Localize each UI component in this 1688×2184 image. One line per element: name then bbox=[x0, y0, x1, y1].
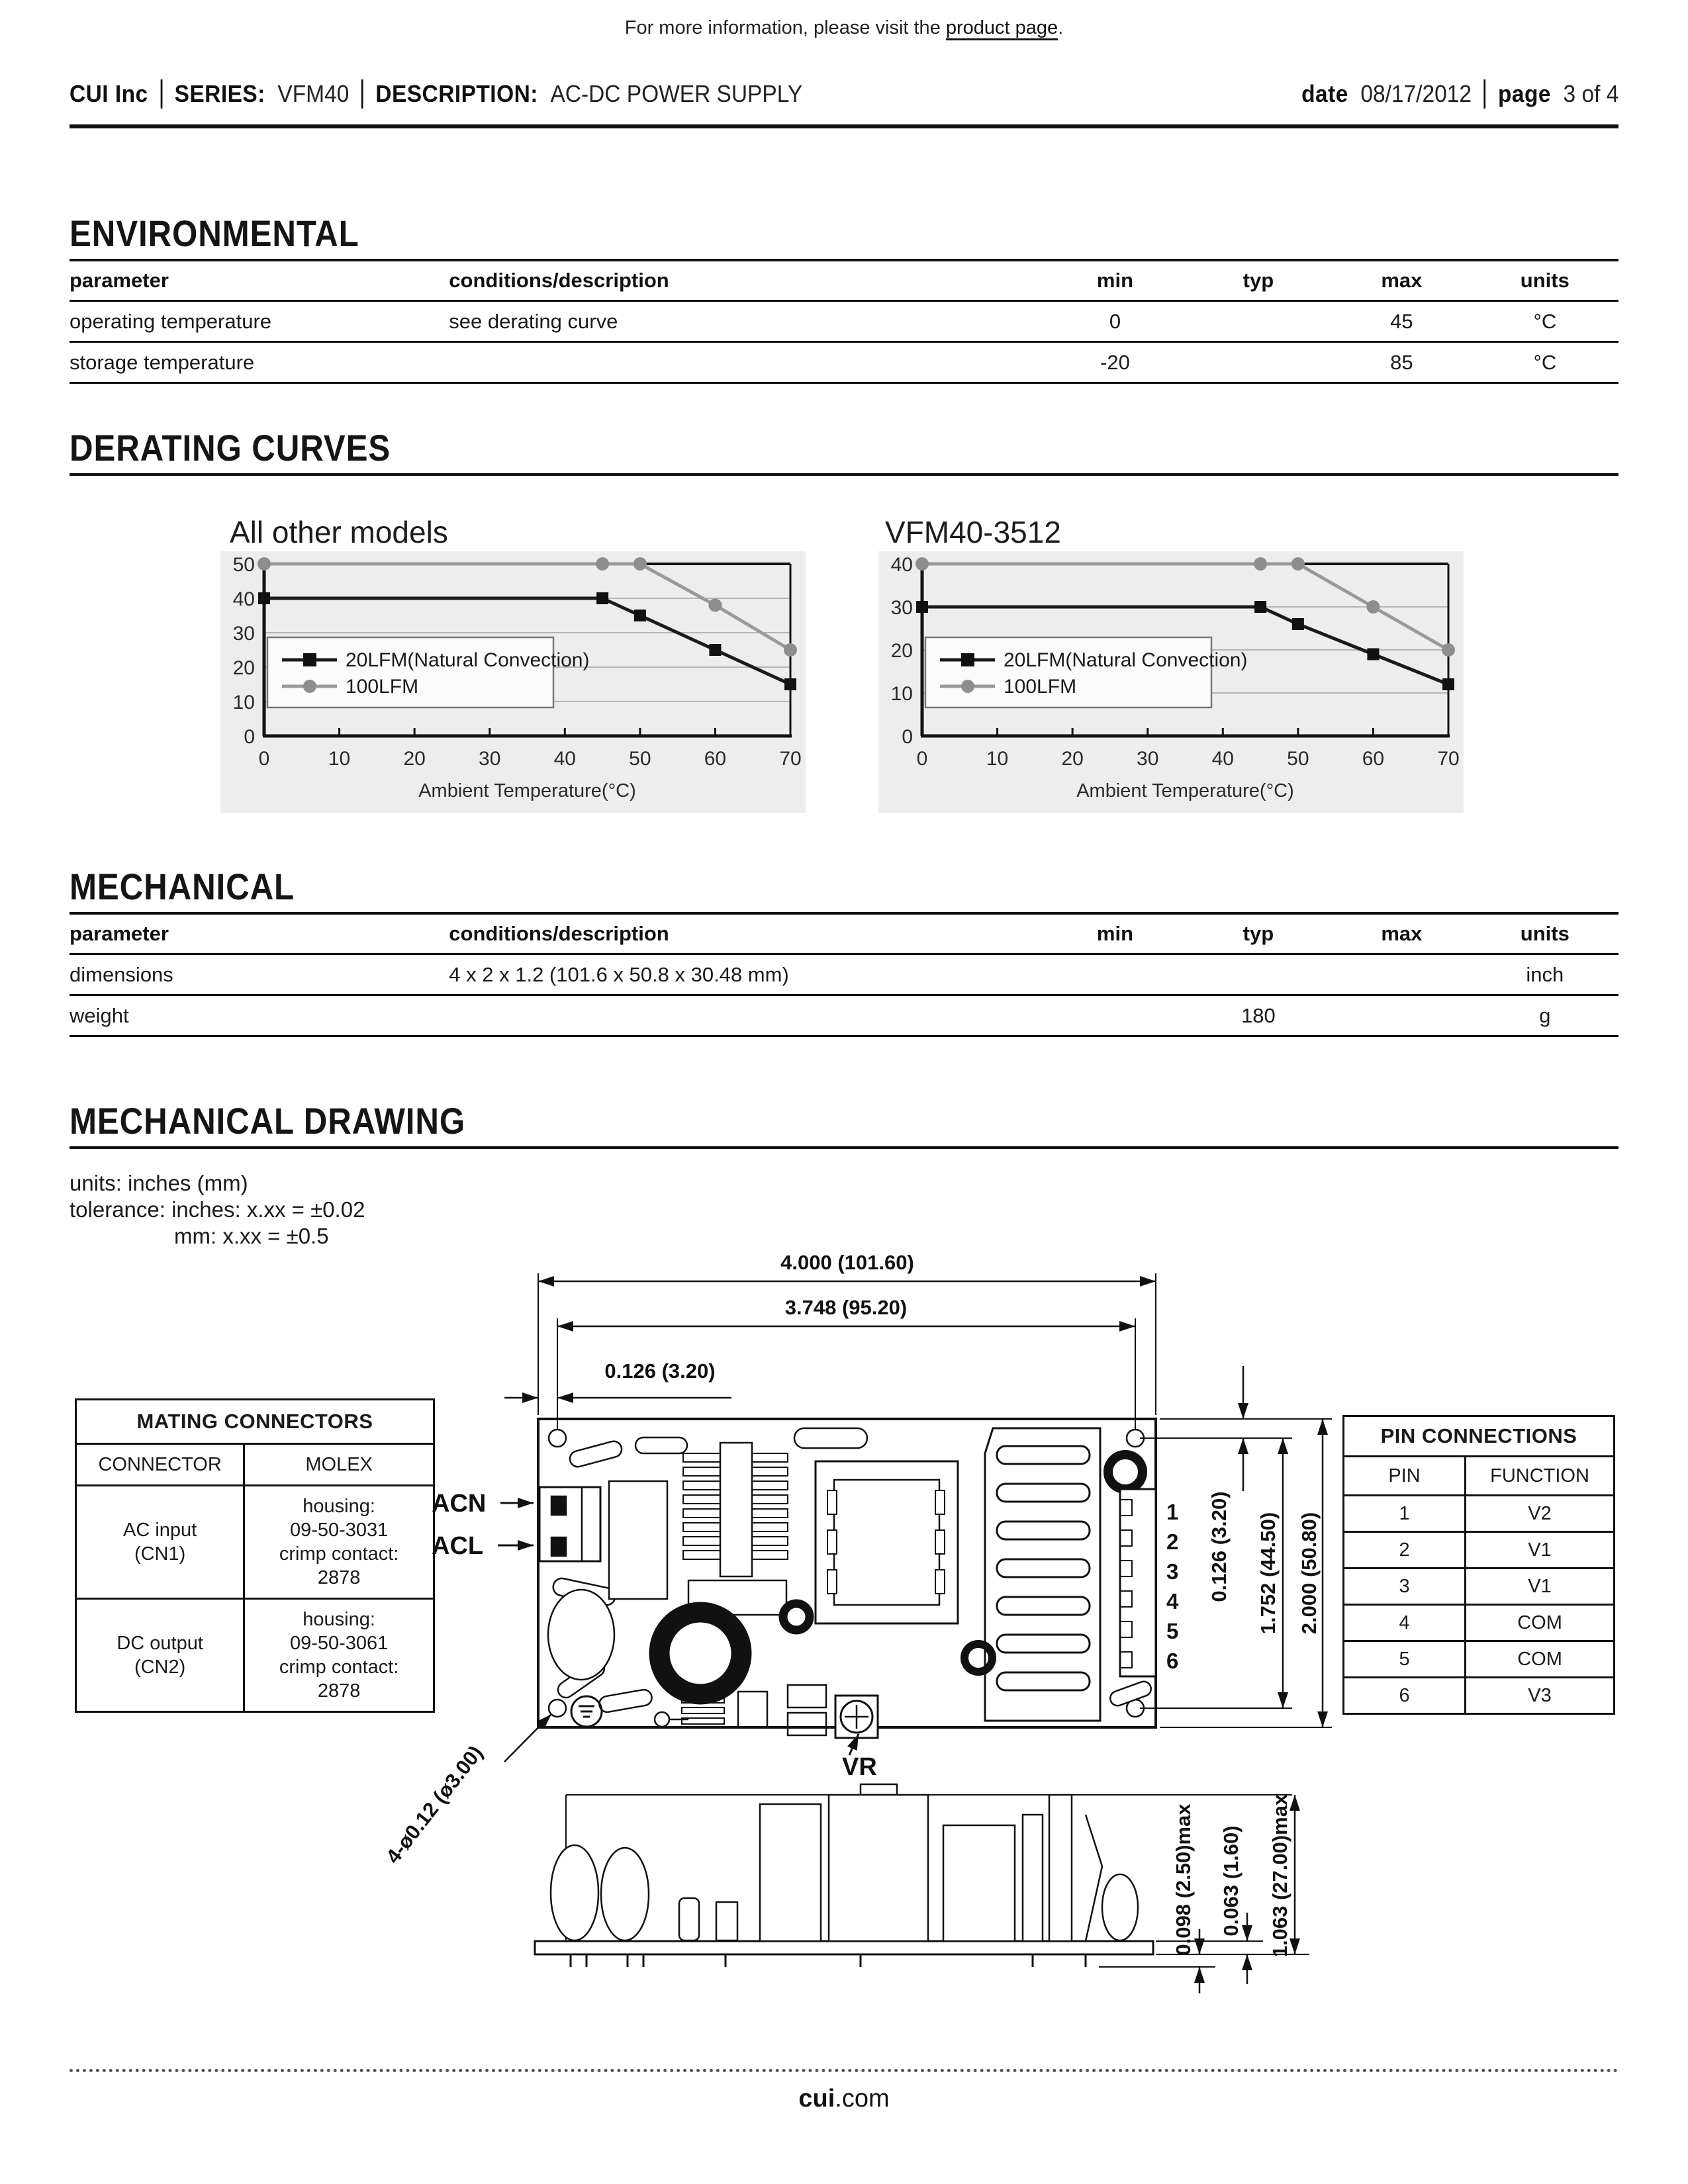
table-row: dimensions 4 x 2 x 1.2 (101.6 x 50.8 x 3… bbox=[70, 954, 1618, 995]
dim-pin-protrusion: 0.098 (2.50)max bbox=[1172, 1803, 1195, 1956]
svg-text:20: 20 bbox=[403, 748, 425, 770]
col-parameter: parameter bbox=[70, 915, 449, 954]
cell-line: housing: bbox=[249, 1494, 429, 1518]
col-molex: MOLEX bbox=[244, 1444, 434, 1486]
cell-line: housing: bbox=[249, 1608, 429, 1631]
cell-line: (CN2) bbox=[81, 1655, 239, 1679]
header-separator bbox=[361, 79, 363, 109]
svg-text:Ambient Temperature(°C): Ambient Temperature(°C) bbox=[418, 780, 636, 801]
cell: inch bbox=[1472, 954, 1618, 995]
ac-input-labels: ACN ACL bbox=[432, 1490, 534, 1560]
svg-text:40: 40 bbox=[554, 748, 576, 770]
small-capacitor bbox=[964, 1644, 992, 1672]
svg-text:100LFM: 100LFM bbox=[1004, 676, 1076, 698]
col-connector: CONNECTOR bbox=[76, 1444, 244, 1486]
cell: 180 bbox=[1185, 995, 1332, 1036]
mechanical-section: MECHANICAL parameter conditions/descript… bbox=[70, 868, 1618, 1037]
cell: 4 x 2 x 1.2 (101.6 x 50.8 x 30.48 mm) bbox=[449, 954, 1045, 995]
footer-brand: cui bbox=[798, 2085, 835, 2113]
svg-text:50: 50 bbox=[233, 554, 255, 576]
pin-number: 2 bbox=[1166, 1529, 1178, 1554]
footer-rule bbox=[70, 2069, 1618, 2072]
cell: V2 bbox=[1466, 1496, 1615, 1532]
col-max: max bbox=[1332, 915, 1472, 954]
svg-text:10: 10 bbox=[233, 692, 255, 713]
cell bbox=[1332, 954, 1472, 995]
bulk-capacitor bbox=[659, 1612, 741, 1694]
derating-heading: DERATING CURVES bbox=[70, 430, 1618, 476]
page-label: page bbox=[1498, 80, 1551, 108]
chart-title-vfm40-3512: VFM40-3512 bbox=[885, 514, 1061, 550]
company-name: CUI Inc bbox=[70, 80, 148, 108]
col-conditions: conditions/description bbox=[449, 915, 1045, 954]
vr-text: VR bbox=[842, 1753, 877, 1781]
date-label: date bbox=[1301, 80, 1348, 108]
pin-number-labels: 1 2 3 4 5 6 bbox=[1166, 1500, 1179, 1673]
cell bbox=[449, 342, 1045, 383]
cell: operating temperature bbox=[70, 301, 449, 342]
svg-text:40: 40 bbox=[891, 554, 913, 576]
svg-text:30: 30 bbox=[891, 597, 913, 619]
cell bbox=[1332, 995, 1472, 1036]
cell: °C bbox=[1472, 301, 1618, 342]
table-row: 2V1 bbox=[1344, 1532, 1615, 1569]
svg-text:10: 10 bbox=[328, 748, 350, 770]
dim-height-inner: 1.752 (44.50) bbox=[1256, 1512, 1280, 1634]
heatsink bbox=[985, 1428, 1100, 1721]
table-row: AC input (CN1) housing: 09-50-3031 crimp… bbox=[76, 1486, 434, 1599]
cell: COM bbox=[1466, 1605, 1615, 1641]
pin-number: 6 bbox=[1166, 1649, 1178, 1673]
environmental-section: ENVIRONMENTAL parameter conditions/descr… bbox=[70, 215, 1618, 384]
cell bbox=[1045, 995, 1185, 1036]
dim-height-outer: 2.000 (50.80) bbox=[1297, 1512, 1321, 1634]
product-page-link[interactable]: product page bbox=[946, 17, 1058, 38]
cell: dimensions bbox=[70, 954, 449, 995]
cell: 3 bbox=[1344, 1569, 1466, 1605]
cell: 0 bbox=[1045, 301, 1185, 342]
svg-text:20: 20 bbox=[891, 640, 913, 662]
header-right: date 08/17/2012 page 3 of 4 bbox=[1301, 79, 1618, 109]
col-typ: typ bbox=[1185, 261, 1332, 301]
mechanical-heading: MECHANICAL bbox=[70, 868, 1618, 915]
col-max: max bbox=[1332, 261, 1472, 301]
datasheet-page: For more information, please visit the p… bbox=[0, 0, 1688, 2184]
footer-domain: .com bbox=[835, 2085, 889, 2113]
svg-text:0: 0 bbox=[259, 748, 270, 770]
mechanical-drawing-section: MECHANICAL DRAWING bbox=[70, 1103, 1618, 1149]
cn1-ac-input-connector bbox=[539, 1487, 600, 1561]
cell bbox=[449, 995, 1045, 1036]
output-capacitor bbox=[1108, 1455, 1143, 1489]
through-hole-pins bbox=[571, 1954, 1086, 1967]
svg-text:70: 70 bbox=[779, 748, 801, 770]
pin-connections-table: PIN CONNECTIONS PIN FUNCTION 1V2 2V1 3V1… bbox=[1342, 1415, 1615, 1715]
table-header-row: parameter conditions/description min typ… bbox=[70, 261, 1618, 301]
header-separator bbox=[1483, 79, 1485, 109]
vr-label: VR bbox=[842, 1734, 877, 1781]
drawing-notes: units: inches (mm) tolerance: inches: x.… bbox=[70, 1170, 365, 1250]
table-row: DC output (CN2) housing: 09-50-3061 crim… bbox=[76, 1599, 434, 1712]
table-row: 4COM bbox=[1344, 1605, 1615, 1641]
cell bbox=[1185, 342, 1332, 383]
top-view-drawing bbox=[538, 1419, 1156, 1738]
table-row: 1V2 bbox=[1344, 1496, 1615, 1532]
col-units: units bbox=[1472, 915, 1618, 954]
units-note: units: inches (mm) bbox=[70, 1170, 365, 1197]
svg-text:0: 0 bbox=[244, 726, 255, 748]
table-header-row: parameter conditions/description min typ… bbox=[70, 915, 1618, 954]
svg-text:30: 30 bbox=[1137, 748, 1158, 770]
cell: see derating curve bbox=[449, 301, 1045, 342]
col-typ: typ bbox=[1185, 915, 1332, 954]
header-separator bbox=[160, 79, 162, 109]
derating-section: DERATING CURVES bbox=[70, 430, 1618, 476]
environmental-heading: ENVIRONMENTAL bbox=[70, 215, 1618, 261]
cell bbox=[1185, 301, 1332, 342]
pcb-side-profile bbox=[535, 1941, 1153, 1954]
cell: 2 bbox=[1344, 1532, 1466, 1569]
table-row: 3V1 bbox=[1344, 1569, 1615, 1605]
table-row: storage temperature -20 85 °C bbox=[70, 342, 1618, 383]
svg-text:60: 60 bbox=[704, 748, 726, 770]
description-value: AC-DC POWER SUPPLY bbox=[550, 80, 802, 108]
table-row: operating temperature see derating curve… bbox=[70, 301, 1618, 342]
svg-text:50: 50 bbox=[1287, 748, 1309, 770]
cell-line: 09-50-3061 bbox=[249, 1631, 429, 1655]
pin-number: 3 bbox=[1166, 1559, 1178, 1584]
pin-connections-title: PIN CONNECTIONS bbox=[1344, 1416, 1615, 1457]
dim-pcb-thickness: 0.063 (1.60) bbox=[1219, 1825, 1243, 1936]
svg-text:40: 40 bbox=[1212, 748, 1234, 770]
pin-number: 4 bbox=[1166, 1589, 1179, 1614]
chart-title-all-models: All other models bbox=[230, 514, 448, 550]
cell: 1 bbox=[1344, 1496, 1466, 1532]
dim-component-height: 1.063 (27.00)max bbox=[1268, 1794, 1291, 1957]
cell-line: (CN1) bbox=[81, 1542, 239, 1566]
tolerance-note: tolerance: inches: x.xx = ±0.02 bbox=[70, 1197, 365, 1223]
cell: 4 bbox=[1344, 1605, 1466, 1641]
svg-text:40: 40 bbox=[233, 588, 255, 610]
header-rule bbox=[70, 124, 1618, 128]
cell-line: crimp contact: bbox=[249, 1655, 429, 1679]
date-value: 08/17/2012 bbox=[1360, 80, 1472, 108]
mechanical-drawing-heading: MECHANICAL DRAWING bbox=[70, 1103, 1618, 1149]
col-pin: PIN bbox=[1344, 1457, 1466, 1496]
cn2-dc-output-connector bbox=[1120, 1489, 1156, 1676]
svg-text:100LFM: 100LFM bbox=[346, 676, 418, 698]
svg-text:0: 0 bbox=[917, 748, 928, 770]
col-units: units bbox=[1472, 261, 1618, 301]
svg-text:20: 20 bbox=[1061, 748, 1083, 770]
derating-chart-all-models: 01020304050010203040506070Ambient Temper… bbox=[220, 551, 806, 813]
svg-text:30: 30 bbox=[479, 748, 500, 770]
cell: weight bbox=[70, 995, 449, 1036]
dim-offset-left: 0.126 (3.20) bbox=[604, 1359, 715, 1383]
series-value: VFM40 bbox=[277, 80, 349, 108]
footer: cui.com bbox=[0, 2085, 1688, 2113]
cell bbox=[1185, 954, 1332, 995]
mating-connectors-title: MATING CONNECTORS bbox=[76, 1400, 434, 1444]
table-row: weight 180 g bbox=[70, 995, 1618, 1036]
side-components bbox=[551, 1784, 1138, 1941]
cell: -20 bbox=[1045, 342, 1185, 383]
svg-text:10: 10 bbox=[986, 748, 1008, 770]
pin-number: 5 bbox=[1166, 1619, 1178, 1643]
top-note-period: . bbox=[1058, 17, 1063, 38]
svg-text:20LFM(Natural Convection): 20LFM(Natural Convection) bbox=[346, 649, 589, 671]
col-min: min bbox=[1045, 915, 1185, 954]
cell: V1 bbox=[1466, 1569, 1615, 1605]
svg-text:70: 70 bbox=[1437, 748, 1459, 770]
svg-text:10: 10 bbox=[891, 683, 913, 705]
cell bbox=[1045, 954, 1185, 995]
derating-chart-vfm40-3512: 010203040010203040506070Ambient Temperat… bbox=[878, 551, 1464, 813]
cell: V3 bbox=[1466, 1678, 1615, 1714]
table-row: 6V3 bbox=[1344, 1678, 1615, 1714]
header-left: CUI Inc SERIES: VFM40 DESCRIPTION: AC-DC… bbox=[70, 79, 802, 109]
cell: 45 bbox=[1332, 301, 1472, 342]
cell: 6 bbox=[1344, 1678, 1466, 1714]
mating-connectors-table: MATING CONNECTORS CONNECTOR MOLEX AC inp… bbox=[75, 1398, 435, 1713]
cell-line: 2878 bbox=[249, 1679, 429, 1703]
small-capacitor bbox=[783, 1604, 810, 1630]
main-transformer bbox=[816, 1461, 958, 1623]
top-note-text: For more information, please visit the bbox=[625, 17, 946, 38]
svg-text:Ambient Temperature(°C): Ambient Temperature(°C) bbox=[1076, 780, 1294, 801]
cell-line: crimp contact: bbox=[249, 1542, 429, 1566]
ground-symbol-icon bbox=[571, 1696, 602, 1727]
svg-text:60: 60 bbox=[1362, 748, 1384, 770]
dim-width-outer: 4.000 (101.60) bbox=[780, 1251, 914, 1274]
description-label: DESCRIPTION: bbox=[375, 80, 538, 108]
cell: 5 bbox=[1344, 1641, 1466, 1678]
svg-text:20LFM(Natural Convection): 20LFM(Natural Convection) bbox=[1004, 649, 1247, 671]
acn-label: ACN bbox=[432, 1490, 486, 1518]
page-value: 3 of 4 bbox=[1563, 80, 1618, 108]
pin-number: 1 bbox=[1166, 1500, 1178, 1524]
svg-text:20: 20 bbox=[233, 657, 255, 679]
hole-callout-text: 4-ø0.12 (ø3.00) bbox=[381, 1741, 487, 1868]
mechanical-table: parameter conditions/description min typ… bbox=[70, 915, 1618, 1037]
svg-text:0: 0 bbox=[902, 726, 913, 748]
cell: g bbox=[1472, 995, 1618, 1036]
vr-potentiometer bbox=[835, 1696, 878, 1738]
environmental-table: parameter conditions/description min typ… bbox=[70, 261, 1618, 384]
cell: V1 bbox=[1466, 1532, 1615, 1569]
cell: °C bbox=[1472, 342, 1618, 383]
cell: COM bbox=[1466, 1641, 1615, 1678]
acl-label: ACL bbox=[432, 1532, 483, 1560]
series-label: SERIES: bbox=[175, 80, 265, 108]
cell-line: AC input bbox=[81, 1518, 239, 1542]
svg-text:50: 50 bbox=[629, 748, 651, 770]
hole-callout: 4-ø0.12 (ø3.00) bbox=[381, 1714, 551, 1868]
dim-width-inner: 3.748 (95.20) bbox=[785, 1296, 907, 1319]
cell: 85 bbox=[1332, 342, 1472, 383]
cell: storage temperature bbox=[70, 342, 449, 383]
dim-offset-top: 0.126 (3.20) bbox=[1207, 1491, 1231, 1602]
cell-line: DC output bbox=[81, 1631, 239, 1655]
col-conditions: conditions/description bbox=[449, 261, 1045, 301]
table-row: 5COM bbox=[1344, 1641, 1615, 1678]
top-note: For more information, please visit the p… bbox=[0, 17, 1688, 39]
col-parameter: parameter bbox=[70, 261, 449, 301]
cell-line: 09-50-3031 bbox=[249, 1518, 429, 1542]
col-function: FUNCTION bbox=[1466, 1457, 1615, 1496]
input-choke bbox=[683, 1443, 788, 1576]
svg-text:30: 30 bbox=[233, 623, 255, 645]
col-min: min bbox=[1045, 261, 1185, 301]
cell-line: 2878 bbox=[249, 1566, 429, 1590]
